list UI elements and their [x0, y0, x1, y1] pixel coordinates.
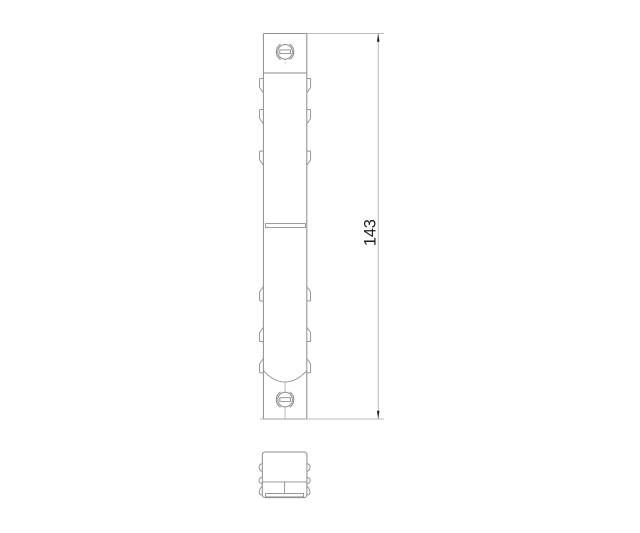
svg-text:143: 143	[362, 219, 380, 246]
